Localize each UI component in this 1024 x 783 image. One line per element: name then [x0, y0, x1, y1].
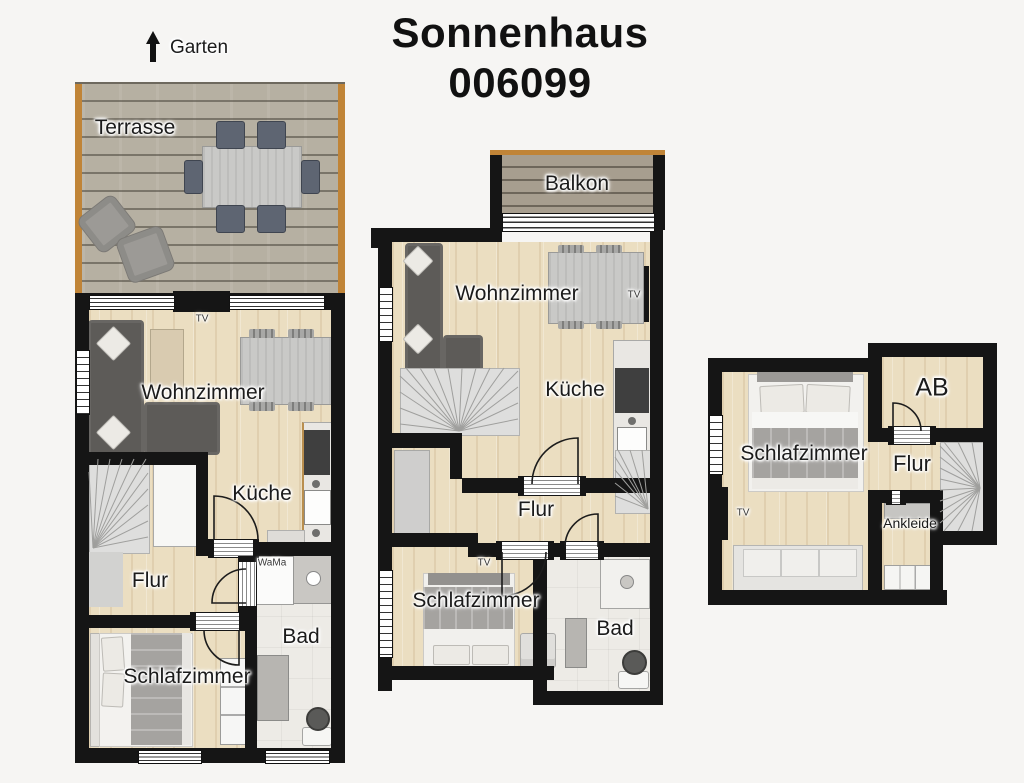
wama-label: WaMa [258, 558, 287, 569]
room-label-bad: Bad [596, 617, 633, 641]
tv-label: TV [478, 558, 491, 569]
room-label-flur: Flur [132, 569, 168, 593]
garten-label: Garten [170, 37, 228, 59]
room-label-schlafzimmer: Schlafzimmer [412, 589, 539, 613]
tv-label: TV [628, 290, 641, 301]
garten-arrow-stem [150, 43, 156, 62]
window [709, 415, 723, 475]
wall-segment [378, 228, 502, 242]
bed-sheet [752, 478, 858, 489]
toilet-bowl [306, 707, 330, 731]
chair [288, 402, 314, 411]
door-frame [888, 426, 936, 445]
door-frame [238, 556, 257, 612]
window [76, 350, 90, 415]
window [379, 570, 393, 658]
room-label-schlafzimmer: Schlafzimmer [740, 442, 867, 466]
bed-pillow [472, 645, 509, 665]
tv-label: TV [737, 508, 750, 519]
wall-segment [600, 543, 650, 557]
window [138, 750, 202, 764]
wall-segment [378, 533, 478, 547]
sideboard [150, 329, 184, 389]
staircase [400, 368, 520, 436]
tv-wall-mount [173, 291, 230, 312]
door-frame [190, 612, 245, 631]
counter-knob [312, 529, 320, 537]
door-frame [560, 541, 604, 560]
wardrobe [884, 565, 932, 590]
wall-segment [533, 543, 547, 705]
bed-headboard [757, 372, 853, 382]
room-label-kueche: Küche [232, 482, 292, 506]
page-title: Sonnenhaus 006099 [391, 8, 648, 108]
bathroom-sink [565, 618, 587, 668]
terrace-chair [184, 160, 203, 194]
terrace-trim-left [75, 84, 82, 293]
wall-segment [75, 615, 190, 628]
wall-segment [378, 666, 554, 680]
wall-segment [868, 343, 997, 357]
toilet-bowl [622, 650, 647, 675]
balcony-trim [490, 150, 665, 155]
bed-pillow [101, 636, 125, 671]
wall-segment [450, 433, 462, 479]
understairs-storage [89, 552, 123, 607]
wall-segment [331, 293, 345, 763]
terrace-chair [216, 121, 245, 149]
staircase [89, 459, 150, 554]
door-frame [518, 476, 586, 496]
wall-segment [533, 691, 663, 705]
bed-duvet [752, 412, 858, 428]
bathroom-sink [257, 655, 289, 721]
wall-segment [983, 343, 997, 545]
room-label-schlafzimmer: Schlafzimmer [123, 665, 250, 689]
room-label-terrasse: Terrasse [95, 116, 176, 140]
balcony-door-window [502, 213, 655, 232]
chair [558, 245, 584, 253]
door-frame [496, 541, 554, 560]
chair [596, 245, 622, 253]
window [229, 295, 325, 310]
wall-segment [708, 358, 722, 605]
terrace-trim-right [338, 84, 345, 293]
tv-label: TV [196, 314, 209, 325]
room-label-ankleide: Ankleide [883, 515, 937, 531]
bed-headboard [428, 573, 510, 585]
chair [558, 321, 584, 329]
stove [304, 430, 330, 475]
room-label-flur: Flur [518, 498, 554, 522]
window [265, 750, 330, 764]
kitchen-sink [304, 490, 331, 525]
shower-drain [306, 571, 321, 586]
room-label-balkon: Balkon [545, 172, 609, 196]
bed-pillow [433, 645, 470, 665]
stove [615, 368, 649, 413]
bed-pillow [759, 384, 804, 415]
chair [288, 329, 314, 338]
bed-blanket [131, 633, 182, 745]
shower-drain [620, 575, 634, 589]
counter-knob [628, 417, 636, 425]
tv-wall-mount [644, 266, 649, 322]
window [379, 287, 393, 342]
closet [394, 450, 430, 535]
chair [596, 321, 622, 329]
room-label-kueche: Küche [545, 378, 605, 402]
sofa-cushion [781, 549, 819, 577]
wall-segment [708, 358, 882, 372]
wall-segment [868, 490, 882, 590]
terrace-chair [301, 160, 320, 194]
tv-wall-mount [722, 487, 728, 540]
sofa-cushion [743, 549, 781, 577]
door-frame [886, 490, 906, 505]
staircase [940, 442, 985, 533]
terrace-chair [257, 121, 286, 149]
title-line1: Sonnenhaus [391, 8, 648, 58]
wall-segment [196, 452, 208, 556]
bed-pillow [101, 672, 125, 707]
bed-drape [182, 633, 191, 745]
wall-segment [708, 590, 947, 605]
chair [249, 329, 275, 338]
terrace-chair [257, 205, 286, 233]
title-line2: 006099 [391, 58, 648, 108]
window [89, 295, 175, 310]
sofa-chaise [144, 402, 220, 455]
sofa-cushion [819, 549, 857, 577]
room-label-wohnzimmer: Wohnzimmer [455, 282, 578, 306]
terrace-dining-table [202, 146, 302, 208]
wall-segment [650, 228, 663, 705]
wall-segment [75, 452, 203, 465]
terrace-chair [216, 205, 245, 233]
wall-segment [490, 155, 502, 230]
room-label-bad: Bad [282, 625, 319, 649]
room-label-wohnzimmer: Wohnzimmer [141, 381, 264, 405]
wall-segment [940, 531, 997, 545]
bed-pillow [805, 384, 850, 415]
room-label-flur: Flur [893, 451, 931, 477]
room-label-ab: AB [915, 374, 948, 403]
counter-knob [312, 480, 320, 488]
floorplan-canvas: Sonnenhaus 006099 Garten [0, 0, 1024, 783]
